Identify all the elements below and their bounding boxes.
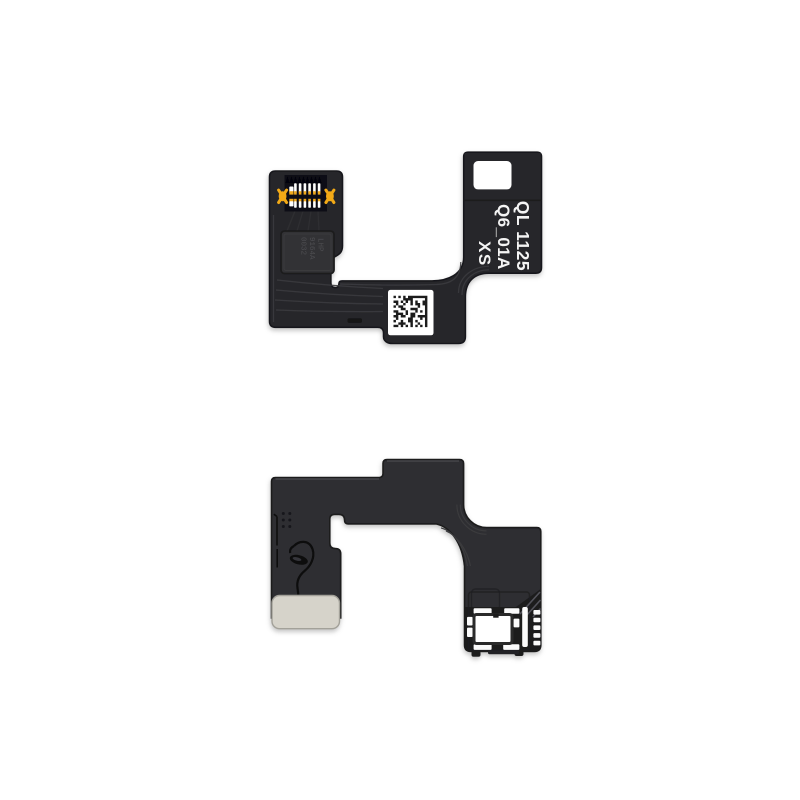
svg-text:Q6_01A: Q6_01A — [494, 204, 513, 270]
svg-text:0032: 0032 — [299, 237, 307, 255]
svg-text:XS: XS — [475, 241, 494, 267]
svg-text:LHP: LHP — [316, 238, 324, 252]
svg-text:9164A: 9164A — [307, 237, 315, 260]
svg-text:QL 1125: QL 1125 — [513, 201, 533, 271]
